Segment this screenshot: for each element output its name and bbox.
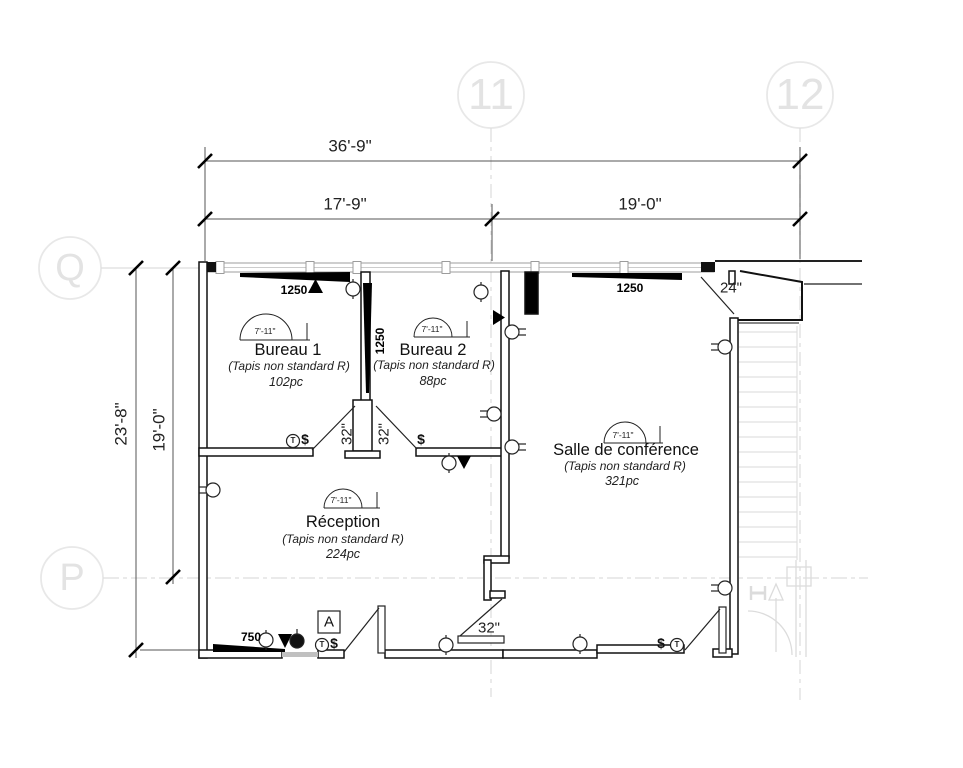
dimension-tick-marks [129, 154, 807, 657]
door-stub-wall [353, 400, 372, 451]
ceiling-fixture-icon [474, 282, 488, 302]
beam-label: 1250 [617, 282, 644, 294]
bureau1-south-wall [199, 448, 313, 456]
sprinkler-icon [505, 325, 526, 339]
dim-width-left: 17'-9" [323, 196, 366, 213]
faint-adjacent-elements [748, 560, 811, 657]
stairs [739, 326, 797, 560]
room-area: 102pc [269, 376, 303, 389]
diffuser-arrow-down-icon [457, 456, 471, 469]
dim-overall-width: 36'-9" [328, 138, 371, 155]
sprinkler-icon [711, 581, 732, 595]
grid-lines [39, 62, 868, 700]
beam-conference [572, 273, 682, 280]
threshold [282, 652, 318, 657]
beam-label: 1250 [281, 284, 308, 296]
dim-door-reception: 32" [478, 621, 500, 636]
conference-door-leaf [719, 607, 726, 653]
sprinkler-icon [480, 407, 501, 421]
conference-west-wall [501, 271, 509, 558]
ceiling-fixture-icon [346, 279, 360, 299]
column-marker [787, 567, 811, 586]
reception-door-leaf [458, 636, 504, 643]
switch-label: $ [657, 636, 665, 650]
dim-entry-door: 24" [720, 281, 742, 296]
entry-vestibule-wall [738, 271, 802, 320]
ceiling-height-label: 7'-11" [330, 496, 351, 505]
room-name-bureau2: Bureau 2 [400, 342, 467, 359]
room-note: (Tapis non standard R) [282, 533, 404, 545]
wall-pier [525, 272, 538, 314]
grid-bubble-q: Q [55, 249, 85, 287]
dimension-lines [129, 147, 807, 658]
thermostat-label: T [675, 641, 680, 649]
floor-plan-sheet: 11 12 Q P 36'-9" 17'-9" 19'-0" 23'-8" 19… [0, 0, 963, 768]
grid-bubble-11: 11 [468, 73, 514, 117]
section-marker-label: A [324, 615, 334, 630]
beam-label: 1250 [374, 328, 386, 355]
conference-east-wall [730, 318, 738, 654]
grid-bubble-p: P [59, 559, 84, 597]
switch-label: $ [417, 432, 425, 446]
exit-light-icon [290, 629, 304, 648]
sprinkler-icon [505, 440, 526, 454]
adjacent-door-arc [748, 611, 792, 655]
dim-width-right: 19'-0" [618, 196, 661, 213]
west-exterior-wall [199, 262, 207, 658]
diffuser-arrow-up-icon [308, 279, 323, 293]
ceiling-fixture-icon [259, 630, 273, 650]
beam-label: 750 [241, 631, 261, 643]
ceiling-height-label: 7'-11" [421, 325, 442, 334]
dim-door-bureau1: 32" [340, 423, 355, 445]
room-note: (Tapis non standard R) [228, 360, 350, 372]
ceiling-height-label: 7'-11" [254, 327, 275, 336]
conference-door-swing [685, 609, 720, 650]
room-note: (Tapis non standard R) [564, 460, 686, 472]
switch-label: $ [330, 636, 338, 650]
south-door-swing [344, 608, 379, 652]
dim-overall-height: 23'-8" [113, 402, 130, 445]
sprinkler-icon [711, 340, 732, 354]
ceiling-height-label: 7'-11" [612, 431, 633, 440]
window-end-cap [701, 262, 715, 272]
south-door-leaf [378, 606, 385, 653]
thermostat-label: T [291, 437, 296, 445]
grid-bubble-12: 12 [776, 73, 825, 117]
beam-bureau1 [240, 272, 350, 282]
room-note: (Tapis non standard R) [373, 359, 495, 371]
room-area: 88pc [419, 375, 446, 388]
bureau2-south-wall [416, 448, 507, 456]
dim-door-bureau2: 32" [377, 423, 392, 445]
thermostat-label: T [320, 641, 325, 649]
dim-height-inner: 19'-0" [151, 408, 168, 451]
beam-south [213, 644, 285, 652]
room-area: 321pc [605, 475, 639, 488]
room-name-reception: Réception [306, 514, 380, 531]
switch-label: $ [301, 432, 309, 446]
room-name-bureau1: Bureau 1 [255, 342, 322, 359]
walls [199, 262, 802, 658]
room-area: 224pc [326, 548, 360, 561]
room-name-conference: Salle de conférence [553, 442, 699, 459]
